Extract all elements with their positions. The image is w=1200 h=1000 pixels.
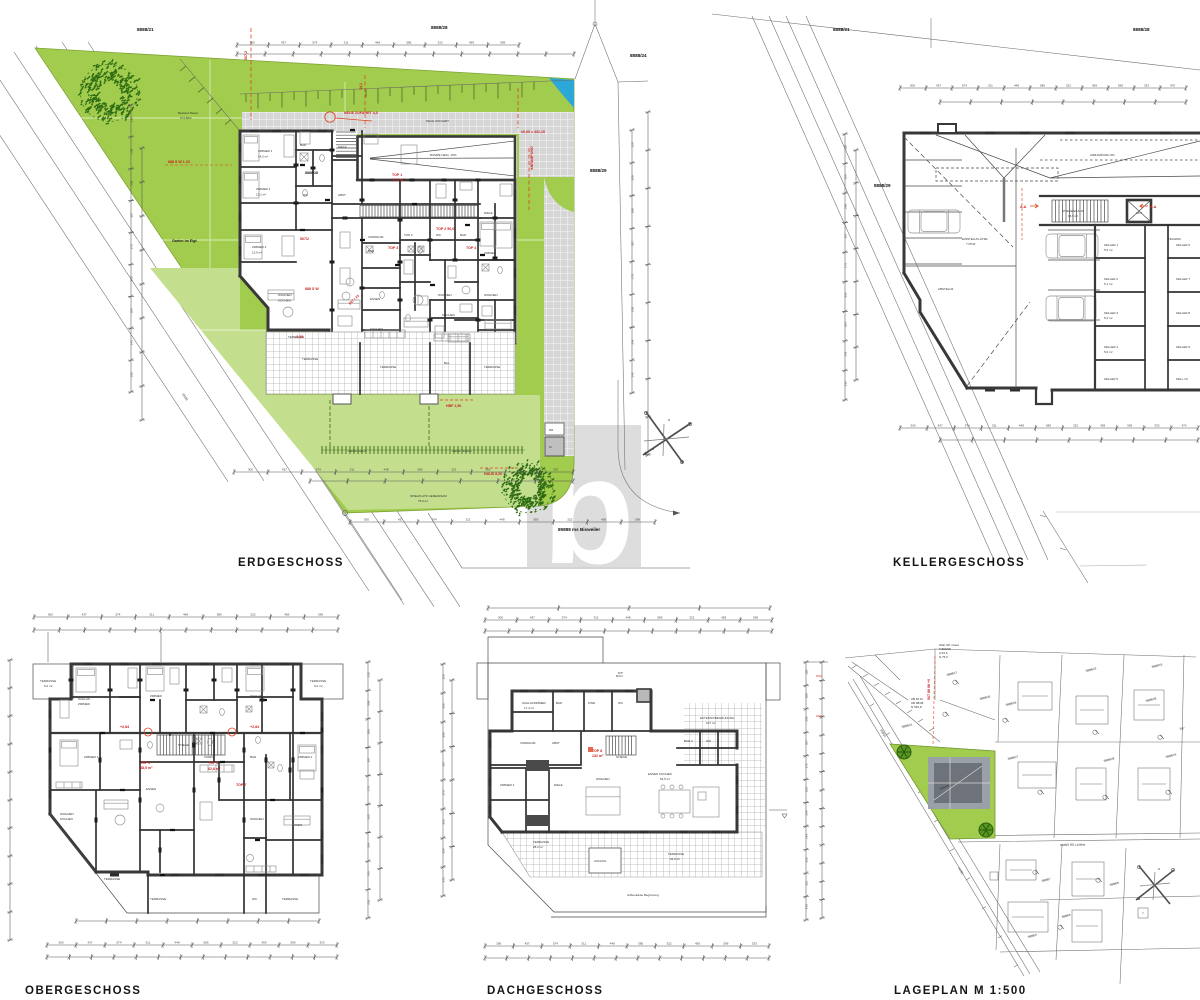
svg-text:SPIELPLATZ GEMEINSAM: SPIELPLATZ GEMEINSAM <box>410 494 447 498</box>
svg-text:176: 176 <box>631 274 635 279</box>
svg-text:KELLER 9: KELLER 9 <box>1176 345 1190 349</box>
svg-text:574: 574 <box>316 468 321 472</box>
svg-text:VORRAUM: VORRAUM <box>368 235 384 239</box>
svg-text:322: 322 <box>567 518 572 522</box>
svg-text:89888 ms Bisweiler: 89888 ms Bisweiler <box>558 527 600 532</box>
svg-text:KELLER 8: KELLER 8 <box>1176 311 1190 315</box>
svg-text:585: 585 <box>657 616 662 620</box>
svg-text:TERRASSE: TERRASSE <box>150 897 166 901</box>
svg-text:574: 574 <box>965 424 970 428</box>
svg-text:ERDGESCHOSS: ERDGESCHOSS <box>238 557 344 569</box>
svg-text:387: 387 <box>844 233 848 238</box>
svg-text:311: 311 <box>581 942 586 946</box>
svg-text:437: 437 <box>525 942 530 946</box>
svg-text:12,9 m²: 12,9 m² <box>252 251 262 255</box>
svg-text:WOHNEN: WOHNEN <box>60 812 74 816</box>
svg-text:DIELE: DIELE <box>338 145 347 149</box>
svg-text:354: 354 <box>367 843 371 848</box>
svg-text:TOP 2 56,0: TOP 2 56,0 <box>436 227 454 231</box>
svg-text:5,5 m²: 5,5 m² <box>1104 248 1113 252</box>
svg-text:WOHNEN: WOHNEN <box>278 293 292 297</box>
svg-text:448: 448 <box>375 41 380 45</box>
svg-text:KELLER 1: KELLER 1 <box>1104 243 1118 247</box>
svg-text:448: 448 <box>1014 84 1019 88</box>
svg-text:300: 300 <box>48 613 53 617</box>
svg-text:BAD: BAD <box>250 755 257 759</box>
svg-text:TERRASSE: TERRASSE <box>104 877 120 881</box>
svg-text:574: 574 <box>553 942 558 946</box>
svg-text:TOP 2: TOP 2 <box>404 233 413 237</box>
svg-text:ABST: ABST <box>338 193 346 197</box>
svg-text:TOP 7: TOP 7 <box>236 783 246 787</box>
svg-text:ESSEN: ESSEN <box>292 823 302 827</box>
svg-text:107 m²: 107 m² <box>706 721 715 725</box>
svg-text:KELL.10: KELL.10 <box>1176 377 1188 381</box>
svg-text:311: 311 <box>344 41 349 45</box>
svg-text:333: 333 <box>752 942 757 946</box>
svg-text:TOP 8: TOP 8 <box>592 749 602 753</box>
svg-text:WC: WC <box>252 897 258 901</box>
svg-text:209: 209 <box>844 174 848 179</box>
svg-text:EXTENSIVBEGRÜNUNG: EXTENSIVBEGRÜNUNG <box>700 716 735 720</box>
svg-text:300: 300 <box>364 518 369 522</box>
svg-text:STIEGE: STIEGE <box>616 755 627 759</box>
svg-text:ZIMMER 1: ZIMMER 1 <box>84 755 99 759</box>
svg-text:596: 596 <box>519 468 524 472</box>
svg-text:KOCHEN: KOCHEN <box>278 299 291 303</box>
svg-text:SCHLAF.: SCHLAF. <box>250 694 263 698</box>
svg-text:Bes.: Bes. <box>444 361 450 365</box>
svg-text:LAGEPLAN M 1:500: LAGEPLAN M 1:500 <box>894 985 1027 997</box>
svg-text:64,0 m²: 64,0 m² <box>670 857 680 861</box>
svg-text:ANRAMPUNG: ANRAMPUNG <box>530 146 534 170</box>
svg-text:265: 265 <box>442 819 446 824</box>
svg-text:TOP 4: TOP 4 <box>466 246 476 250</box>
svg-text:596: 596 <box>1127 424 1132 428</box>
svg-text:209: 209 <box>631 175 635 180</box>
svg-text:17,4 m²: 17,4 m² <box>524 706 534 710</box>
svg-text:OBERGESCHOSS: OBERGESCHOSS <box>25 985 141 997</box>
svg-text:ESSEN KOCHEN: ESSEN KOCHEN <box>648 772 672 776</box>
svg-text:298: 298 <box>631 208 635 213</box>
svg-text:9888/2 RD Lichtistr: 9888/2 RD Lichtistr <box>1060 843 1086 847</box>
svg-text:ZIMMER 3: ZIMMER 3 <box>252 245 267 249</box>
svg-text:322: 322 <box>1073 424 1078 428</box>
svg-text:EINSTELLPLÄTZE: EINSTELLPLÄTZE <box>962 237 988 241</box>
svg-text:DACHGESCHOSS: DACHGESCHOSS <box>487 985 603 997</box>
svg-text:54,5 m²: 54,5 m² <box>660 777 670 781</box>
svg-text:333: 333 <box>320 941 325 945</box>
svg-text:WOHNEN: WOHNEN <box>438 293 452 297</box>
svg-text:ABSTELLR.: ABSTELLR. <box>938 287 954 291</box>
svg-text:WC: WC <box>618 701 624 705</box>
svg-text:322: 322 <box>233 941 238 945</box>
svg-text:596: 596 <box>635 518 640 522</box>
svg-text:KELLER 6: KELLER 6 <box>1176 243 1190 247</box>
svg-text:±0,00 = 431,10: ±0,00 = 431,10 <box>521 130 545 134</box>
svg-text:Garten Nutzun: Garten Nutzun <box>452 449 472 453</box>
svg-text:LIFT: LIFT <box>1136 211 1142 215</box>
svg-text:WOHNEN: WOHNEN <box>596 777 610 781</box>
svg-text:311: 311 <box>149 613 154 617</box>
svg-text:+2,84: +2,84 <box>120 725 129 729</box>
svg-text:TERRASSE: TERRASSE <box>668 852 684 856</box>
svg-text:8888/29: 8888/29 <box>874 183 891 188</box>
svg-text:311: 311 <box>988 84 993 88</box>
svg-text:176: 176 <box>805 763 809 768</box>
svg-text:448: 448 <box>384 468 389 472</box>
svg-text:888 S W: 888 S W <box>305 287 319 291</box>
svg-text:RAMPE NEIG. 15%: RAMPE NEIG. 15% <box>430 153 457 157</box>
svg-text:437: 437 <box>82 613 87 617</box>
svg-text:322: 322 <box>689 616 694 620</box>
svg-text:567,2: 567,2 <box>244 51 248 60</box>
svg-text:298: 298 <box>442 732 446 737</box>
svg-text:459: 459 <box>1100 424 1105 428</box>
svg-text:574: 574 <box>117 941 122 945</box>
svg-text:143: 143 <box>844 351 848 356</box>
svg-text:574: 574 <box>432 518 437 522</box>
svg-text:459: 459 <box>721 616 726 620</box>
svg-text:STIEGENHAUS: STIEGENHAUS <box>1062 209 1084 213</box>
svg-text:437: 437 <box>282 468 287 472</box>
svg-text:298: 298 <box>130 180 134 185</box>
svg-text:459: 459 <box>284 613 289 617</box>
svg-text:354: 354 <box>805 810 809 815</box>
svg-text:354: 354 <box>844 322 848 327</box>
svg-text:596: 596 <box>318 613 323 617</box>
svg-text:Garten Eigt.2: Garten Eigt.2 <box>348 449 366 453</box>
svg-text:265: 265 <box>844 292 848 297</box>
svg-text:209: 209 <box>805 693 809 698</box>
svg-text:265: 265 <box>631 306 635 311</box>
svg-text:322: 322 <box>451 468 456 472</box>
svg-text:ABST: ABST <box>552 741 560 745</box>
svg-text:574: 574 <box>312 41 317 45</box>
svg-text:120: 120 <box>631 142 635 147</box>
svg-text:KELLERGESCHOSS: KELLERGESCHOSS <box>893 557 1025 569</box>
svg-text:265: 265 <box>367 814 371 819</box>
svg-text:9,2 m²: 9,2 m² <box>314 684 323 688</box>
svg-text:SCHLAFZIMMER: SCHLAFZIMMER <box>522 701 547 705</box>
svg-text:120: 120 <box>844 144 848 149</box>
svg-text:132 m²: 132 m² <box>592 754 604 758</box>
svg-text:TERRASSE: TERRASSE <box>40 679 56 683</box>
svg-text:N: N <box>668 418 670 422</box>
svg-text:ANRAMPUNG 5%: ANRAMPUNG 5% <box>1090 153 1115 157</box>
svg-text:ZIMMER 1: ZIMMER 1 <box>258 149 273 153</box>
svg-text:Bestand Mauer: Bestand Mauer <box>178 111 198 115</box>
svg-text:KOCHEN: KOCHEN <box>370 327 383 331</box>
svg-text:888 S W 1 23: 888 S W 1 23 <box>168 160 190 164</box>
svg-text:232: 232 <box>367 899 371 904</box>
svg-text:333: 333 <box>553 468 558 472</box>
svg-text:232: 232 <box>844 381 848 386</box>
svg-text:585: 585 <box>1046 424 1051 428</box>
svg-text:TOP 3: TOP 3 <box>388 246 398 250</box>
svg-text:596: 596 <box>753 616 758 620</box>
svg-text:TOP 1: TOP 1 <box>392 173 402 177</box>
svg-text:354: 354 <box>130 308 134 313</box>
svg-text:WOHNEN: WOHNEN <box>250 817 264 821</box>
svg-text:KOCHEN: KOCHEN <box>442 313 455 317</box>
svg-text:232: 232 <box>805 857 809 862</box>
svg-text:SCHLAF-: SCHLAF- <box>78 697 91 701</box>
svg-text:ZIMMER 2: ZIMMER 2 <box>500 783 515 787</box>
svg-text:459: 459 <box>695 942 700 946</box>
svg-text:BAD: BAD <box>460 233 467 237</box>
svg-text:NEUE ZUFAHRT: NEUE ZUFAHRT <box>426 119 449 123</box>
svg-text:DIELE: DIELE <box>554 783 563 787</box>
svg-text:265: 265 <box>805 787 809 792</box>
svg-text:321: 321 <box>805 880 809 885</box>
svg-text:WC: WC <box>706 739 712 743</box>
svg-text:265: 265 <box>130 276 134 281</box>
svg-text:448: 448 <box>183 613 188 617</box>
svg-text:NEUE ZUFAHRT 4,0: NEUE ZUFAHRT 4,0 <box>344 111 378 115</box>
svg-text:437: 437 <box>398 518 403 522</box>
svg-text:Außenkante Begrünung: Außenkante Begrünung <box>627 893 659 897</box>
svg-text:TERRASSE: TERRASSE <box>282 897 298 901</box>
svg-text:176: 176 <box>844 263 848 268</box>
svg-text:DIELE: DIELE <box>484 211 493 215</box>
svg-text:8888/28: 8888/28 <box>305 171 318 175</box>
svg-text:300: 300 <box>910 84 915 88</box>
svg-text:387: 387 <box>805 740 809 745</box>
svg-text:448: 448 <box>175 941 180 945</box>
svg-text:8888/21: 8888/21 <box>137 27 154 32</box>
svg-text:333: 333 <box>1144 84 1149 88</box>
svg-text:448: 448 <box>500 518 505 522</box>
svg-text:354: 354 <box>442 848 446 853</box>
svg-text:209: 209 <box>367 700 371 705</box>
svg-text:TECHNIK: TECHNIK <box>1168 237 1181 241</box>
svg-text:311: 311 <box>594 616 599 620</box>
svg-text:176: 176 <box>442 790 446 795</box>
svg-text:322: 322 <box>438 41 443 45</box>
svg-text:5,0 m²: 5,0 m² <box>1104 350 1113 354</box>
svg-text:HBF 2,50: HBF 2,50 <box>446 404 461 408</box>
svg-text:KELLER 7: KELLER 7 <box>1176 277 1190 281</box>
svg-text:596: 596 <box>723 942 728 946</box>
svg-text:14,2 m²: 14,2 m² <box>258 155 268 159</box>
svg-text:143: 143 <box>805 834 809 839</box>
svg-text:387: 387 <box>631 241 635 246</box>
svg-text:448: 448 <box>626 616 631 620</box>
svg-text:16,5 m²: 16,5 m² <box>1068 214 1078 218</box>
svg-text:ZIMMER: ZIMMER <box>484 251 497 255</box>
svg-text:437: 437 <box>938 424 943 428</box>
svg-text:ZIMMER: ZIMMER <box>78 702 91 706</box>
svg-text:574: 574 <box>562 616 567 620</box>
svg-text:KELLER 3: KELLER 3 <box>1104 311 1118 315</box>
svg-text:311: 311 <box>466 518 471 522</box>
svg-text:TERRASSE: TERRASSE <box>533 840 549 844</box>
svg-text:13,1 m²: 13,1 m² <box>256 193 266 197</box>
svg-text:176: 176 <box>367 786 371 791</box>
svg-text:KELLER 5: KELLER 5 <box>1104 377 1118 381</box>
svg-text:459: 459 <box>485 468 490 472</box>
svg-text:322: 322 <box>667 942 672 946</box>
svg-text:585: 585 <box>204 941 209 945</box>
svg-text:120: 120 <box>442 674 446 679</box>
svg-text:311: 311 <box>146 941 151 945</box>
svg-text:596: 596 <box>500 41 505 45</box>
svg-text:KELLER 4: KELLER 4 <box>1104 345 1118 349</box>
svg-text:143: 143 <box>442 877 446 882</box>
svg-text:KOCHEN: KOCHEN <box>60 817 73 821</box>
svg-text:322: 322 <box>1066 84 1071 88</box>
svg-text:BAD: BAD <box>368 249 375 253</box>
svg-text:387: 387 <box>442 761 446 766</box>
svg-text:8888/28: 8888/28 <box>1133 27 1150 32</box>
svg-text:298: 298 <box>844 204 848 209</box>
svg-text:-0,15: -0,15 <box>295 335 303 339</box>
svg-text:h=1,80m: h=1,80m <box>180 116 192 120</box>
svg-text:Garten im Eigt.: Garten im Eigt. <box>172 239 198 243</box>
svg-text:WC: WC <box>436 233 442 237</box>
svg-text:459: 459 <box>1092 84 1097 88</box>
svg-text:574: 574 <box>962 84 967 88</box>
svg-text:8888/21: 8888/21 <box>833 27 850 32</box>
svg-text:596: 596 <box>1118 84 1123 88</box>
svg-text:TERRASSE: TERRASSE <box>484 365 500 369</box>
svg-text:BAD: BAD <box>556 701 563 705</box>
svg-text:TOP 5: TOP 5 <box>140 761 150 765</box>
svg-text:437: 437 <box>530 616 535 620</box>
svg-text:8888/29: 8888/29 <box>590 168 607 173</box>
svg-text:5,1 m²: 5,1 m² <box>1104 282 1113 286</box>
svg-text:298: 298 <box>367 729 371 734</box>
svg-text:209: 209 <box>442 703 446 708</box>
svg-text:410: 410 <box>805 904 809 909</box>
svg-text:387: 387 <box>367 757 371 762</box>
svg-text:TOP 6: TOP 6 <box>208 761 218 765</box>
svg-text:596: 596 <box>291 941 296 945</box>
svg-text:5,2 m²: 5,2 m² <box>1104 316 1113 320</box>
svg-text:A-A: A-A <box>1150 205 1157 209</box>
svg-text:300: 300 <box>250 41 255 45</box>
svg-text:8,5°: 8,5° <box>618 671 624 675</box>
svg-text:ESSEN: ESSEN <box>370 297 380 301</box>
svg-text:459: 459 <box>469 41 474 45</box>
svg-text:567/2: 567/2 <box>300 237 309 241</box>
svg-text:A-A: A-A <box>1020 205 1027 209</box>
svg-text:209: 209 <box>130 148 134 153</box>
svg-text:TERRASSE: TERRASSE <box>310 679 326 683</box>
svg-text:585: 585 <box>417 468 422 472</box>
svg-text:300: 300 <box>59 941 64 945</box>
svg-text:143: 143 <box>367 871 371 876</box>
svg-text:TERRASSE: TERRASSE <box>380 365 396 369</box>
svg-text:300: 300 <box>496 942 501 946</box>
svg-text:8888/28: 8888/28 <box>431 25 448 30</box>
svg-text:120: 120 <box>367 672 371 677</box>
svg-text:300: 300 <box>248 468 253 472</box>
svg-text:ESSEN: ESSEN <box>146 787 156 791</box>
svg-text:75,0 m²: 75,0 m² <box>418 499 428 503</box>
svg-text:STIEGE: STIEGE <box>178 743 189 747</box>
svg-text:KELLER 2: KELLER 2 <box>1104 277 1118 281</box>
svg-text:ZIMMER 2: ZIMMER 2 <box>256 187 271 191</box>
svg-text:BAD: BAD <box>300 143 307 147</box>
svg-text:585: 585 <box>1040 84 1045 88</box>
svg-text:470: 470 <box>1170 84 1175 88</box>
svg-text:34,1: 34,1 <box>359 83 363 90</box>
svg-text:567 88 98 +0: 567 88 98 +0 <box>927 679 931 700</box>
svg-text:71,5 m²: 71,5 m² <box>392 178 405 182</box>
svg-text:176: 176 <box>130 244 134 249</box>
svg-text:311: 311 <box>350 468 355 472</box>
svg-text:459: 459 <box>262 941 267 945</box>
svg-text:120: 120 <box>805 669 809 674</box>
svg-text:+2,84: +2,84 <box>250 725 259 729</box>
svg-text:N: N <box>1158 867 1160 871</box>
svg-text:437: 437 <box>281 41 286 45</box>
svg-text:311: 311 <box>992 424 997 428</box>
svg-text:322: 322 <box>251 613 256 617</box>
svg-text:448: 448 <box>610 942 615 946</box>
svg-text:387: 387 <box>130 212 134 217</box>
svg-text:459: 459 <box>601 518 606 522</box>
svg-text:ZIMMER: ZIMMER <box>150 694 163 698</box>
svg-text:143: 143 <box>631 372 635 377</box>
svg-text:N 75,0: N 75,0 <box>939 655 948 659</box>
svg-text:232: 232 <box>130 372 134 377</box>
svg-text:BAD 2: BAD 2 <box>684 739 693 743</box>
svg-text:HAUS 8,00: HAUS 8,00 <box>484 472 502 476</box>
svg-text:143: 143 <box>130 340 134 345</box>
svg-text:437: 437 <box>88 941 93 945</box>
svg-text:28,2 m²: 28,2 m² <box>533 845 543 849</box>
svg-text:470: 470 <box>1181 424 1186 428</box>
svg-text:300: 300 <box>911 424 916 428</box>
svg-text:N 545,8: N 545,8 <box>911 705 922 709</box>
svg-text:585: 585 <box>406 41 411 45</box>
svg-text:S: S <box>652 447 654 451</box>
svg-text:KIND: KIND <box>588 701 596 705</box>
svg-text:7 PKW: 7 PKW <box>966 242 976 246</box>
svg-text:9,2 m²: 9,2 m² <box>44 684 53 688</box>
svg-text:585: 585 <box>533 518 538 522</box>
svg-text:VORRAUM: VORRAUM <box>520 741 536 745</box>
svg-text:8888/24: 8888/24 <box>630 53 647 58</box>
svg-text:333: 333 <box>1154 424 1159 428</box>
svg-text:585: 585 <box>638 942 643 946</box>
svg-text:ZIMMER 2: ZIMMER 2 <box>298 755 313 759</box>
svg-text:448: 448 <box>1019 424 1024 428</box>
svg-text:88,5 m²: 88,5 m² <box>140 766 153 770</box>
svg-text:300: 300 <box>498 616 503 620</box>
svg-text:298: 298 <box>805 716 809 721</box>
svg-text:WC: WC <box>303 193 309 197</box>
svg-text:585: 585 <box>217 613 222 617</box>
svg-text:VORR.: VORR. <box>204 755 214 759</box>
svg-text:437: 437 <box>936 84 941 88</box>
svg-text:TERRASSE: TERRASSE <box>302 357 318 361</box>
svg-text:120: 120 <box>130 117 134 122</box>
svg-text:354: 354 <box>631 339 635 344</box>
svg-text:WOHNEN: WOHNEN <box>484 293 498 297</box>
svg-text:62,8 m²: 62,8 m² <box>208 767 221 771</box>
svg-text:574: 574 <box>115 613 120 617</box>
svg-text:AUFZUG: AUFZUG <box>594 859 607 863</box>
